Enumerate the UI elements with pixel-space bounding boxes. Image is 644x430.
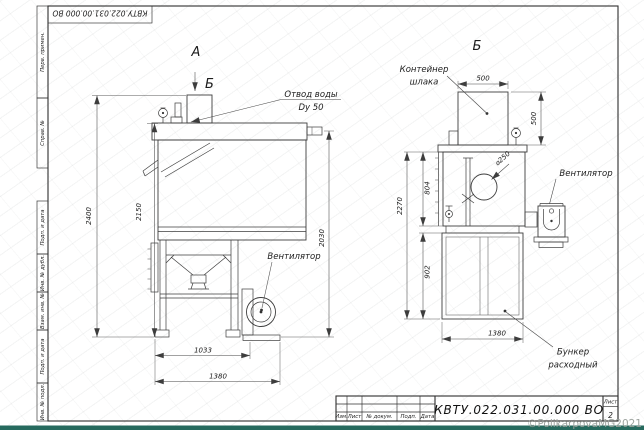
scrubber-chamber bbox=[158, 140, 306, 240]
front-view-label: А bbox=[191, 45, 201, 60]
margin-label-vzam-inv: Взам. инв. № bbox=[40, 293, 46, 329]
hole-dia-callout: ⌀250 bbox=[492, 149, 513, 179]
drain-valve bbox=[446, 206, 453, 222]
feed-hopper-text-2: расходный bbox=[547, 361, 598, 371]
front-view: А Б bbox=[85, 45, 341, 385]
water-outlet-text-1: Отвод воды bbox=[284, 90, 338, 100]
dim-1380-side: 1380 bbox=[488, 330, 506, 338]
pressure-gauge bbox=[159, 108, 168, 123]
dim-2030: 2030 bbox=[318, 229, 326, 247]
door-hinge-strip bbox=[148, 243, 159, 292]
tb-col-data: Дата bbox=[420, 414, 435, 420]
margin-label-perv-primen: Перв. примен. bbox=[40, 32, 46, 72]
drawing-frame: КВТУ.022.031.00.000 ВО Перв. примен. Спр… bbox=[37, 6, 618, 421]
side-view-dimensions: 500 500 2270 804 902 1380 bbox=[396, 75, 546, 344]
engineering-drawing-canvas: КВТУ.022.031.00.000 ВО Перв. примен. Спр… bbox=[0, 0, 644, 430]
roof-band bbox=[152, 123, 307, 140]
bottom-bar: ©PolikarpovaMG2021 bbox=[0, 418, 644, 430]
tb-doc-number: КВТУ.022.031.00.000 ВО bbox=[434, 403, 604, 417]
discharge-hopper bbox=[166, 255, 231, 289]
side-view-body bbox=[435, 92, 568, 319]
support-frame bbox=[155, 240, 240, 337]
site-watermark: ©PolikarpovaMG2021 bbox=[527, 418, 642, 430]
margin-label-inv-podl: Инв. № подл. bbox=[40, 384, 46, 421]
tb-col-dokum: № докум. bbox=[365, 414, 392, 420]
dim-2270: 2270 bbox=[396, 197, 404, 215]
exhaust-stack bbox=[187, 95, 212, 123]
margin-label-sprav-n: Справ. № bbox=[40, 120, 46, 146]
dim-1380-front: 1380 bbox=[209, 373, 227, 381]
frame-border bbox=[48, 6, 618, 421]
dim-500-width: 500 bbox=[476, 75, 490, 83]
dim-902: 902 bbox=[424, 265, 432, 279]
section-arrow-b-label: Б bbox=[205, 77, 214, 92]
fan-duct bbox=[525, 212, 537, 227]
feed-hopper-box bbox=[442, 226, 523, 319]
roof-band-side bbox=[438, 145, 527, 152]
slag-container bbox=[458, 92, 508, 145]
feed-hopper-text-1: Бункер bbox=[557, 348, 589, 358]
dim-2400: 2400 bbox=[85, 207, 93, 225]
pressure-gauge-side bbox=[512, 128, 521, 145]
dim-1033: 1033 bbox=[194, 347, 212, 355]
side-view: Б bbox=[396, 39, 613, 371]
top-stamp-doc-number: КВТУ.022.031.00.000 ВО bbox=[52, 9, 147, 18]
water-outlet-callout: Отвод воды Dy 50 bbox=[191, 90, 341, 122]
dim-804: 804 bbox=[424, 181, 432, 194]
margin-label-podp-data-2: Подп. и дата bbox=[40, 338, 46, 374]
tb-col-podp: Подп. bbox=[400, 414, 416, 420]
water-outlet-stub bbox=[307, 127, 322, 135]
container-bracket bbox=[449, 131, 458, 145]
tb-col-izm: Изм. bbox=[335, 414, 347, 420]
side-flap bbox=[143, 160, 158, 176]
inclined-baffle bbox=[161, 143, 214, 177]
front-view-body bbox=[143, 95, 322, 341]
fan-label-front: Вентилятор bbox=[267, 252, 320, 262]
drain-elbow-pipe bbox=[171, 103, 182, 123]
fan-callout-front: Вентилятор bbox=[260, 252, 320, 311]
fan-front bbox=[242, 289, 280, 341]
door-hinge-strip-side bbox=[435, 152, 439, 226]
margin-label-column: Перв. примен. Справ. № Подп. и дата Инв.… bbox=[37, 6, 48, 421]
slag-container-text-1: Контейнер bbox=[400, 65, 449, 75]
dim-500-height: 500 bbox=[530, 111, 538, 125]
scrubber-chamber-side bbox=[443, 152, 525, 226]
water-outlet-text-2: Dy 50 bbox=[298, 103, 323, 113]
margin-label-inv-dubl: Инв. № дубл. bbox=[40, 255, 46, 291]
side-view-label: Б bbox=[473, 39, 482, 54]
fan-callout-side: Вентилятор bbox=[550, 169, 613, 204]
slag-container-callout: Контейнер шлака bbox=[400, 65, 489, 115]
fan-side bbox=[525, 204, 568, 248]
top-stamp: КВТУ.022.031.00.000 ВО bbox=[48, 6, 152, 23]
tb-col-list: Лист bbox=[347, 414, 362, 420]
dim-2150: 2150 bbox=[135, 203, 143, 221]
section-arrow-b: Б bbox=[195, 72, 214, 92]
margin-label-podp-data-1: Подп. и дата bbox=[40, 209, 46, 245]
fan-label-side: Вентилятор bbox=[559, 169, 612, 179]
slag-container-text-2: шлака bbox=[410, 78, 439, 88]
tb-sheet-label: Лист bbox=[603, 400, 618, 406]
